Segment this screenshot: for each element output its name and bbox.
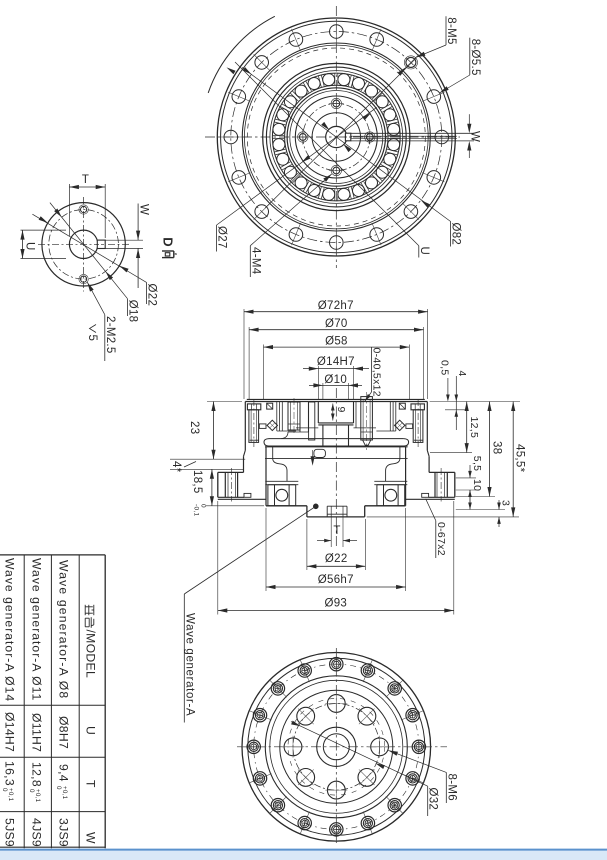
svg-text:Ø56h7: Ø56h7	[318, 574, 354, 586]
svg-text:Ø14H7: Ø14H7	[317, 356, 355, 368]
svg-text:3: 3	[500, 500, 512, 506]
svg-text:Wave generator-A Ø11: Wave generator-A Ø11	[30, 558, 44, 701]
svg-text:4-M4: 4-M4	[249, 247, 261, 275]
svg-text:Ø72h7: Ø72h7	[318, 300, 354, 312]
svg-text:8-M6: 8-M6	[445, 774, 457, 801]
svg-text:Ø32: Ø32	[427, 788, 439, 811]
svg-text:Ø10: Ø10	[324, 374, 347, 386]
svg-text:3JS9: 3JS9	[57, 818, 71, 847]
svg-text:0-40,5x12: 0-40,5x12	[371, 348, 383, 397]
svg-text:18,5: 18,5	[191, 470, 203, 494]
svg-text:Wave generator-A Ø14: Wave generator-A Ø14	[3, 558, 17, 702]
svg-text:/MODEL: /MODEL	[84, 630, 98, 679]
svg-text:9: 9	[335, 407, 347, 413]
svg-text:Ø22: Ø22	[146, 284, 158, 307]
svg-text:Ø27: Ø27	[216, 226, 228, 249]
svg-text:Ø18: Ø18	[127, 300, 139, 323]
svg-text:8-Ø5.5: 8-Ø5.5	[469, 39, 481, 76]
svg-text:2-M2.5: 2-M2.5	[104, 316, 116, 354]
svg-text:T: T	[84, 780, 98, 788]
svg-text:10: 10	[471, 479, 483, 491]
svg-text:4*: 4*	[170, 461, 182, 473]
svg-text:0: 0	[28, 789, 35, 793]
svg-text:T: T	[333, 525, 340, 537]
svg-text:Ø93: Ø93	[324, 598, 347, 610]
svg-text:U: U	[84, 726, 98, 735]
svg-text:Wave generator-A: Wave generator-A	[183, 613, 195, 716]
svg-text:Ø11H7: Ø11H7	[30, 713, 44, 752]
svg-text:0: 0	[55, 786, 62, 790]
svg-text:Wave generator-A Ø8: Wave generator-A Ø8	[57, 560, 71, 699]
svg-text:Ø14H7: Ø14H7	[3, 712, 17, 752]
svg-text:38: 38	[491, 441, 503, 454]
svg-text:4: 4	[456, 371, 468, 377]
svg-text:Ø22: Ø22	[325, 553, 348, 565]
svg-text:Ø8H7: Ø8H7	[57, 716, 71, 749]
svg-text:W: W	[468, 131, 480, 142]
svg-text:45,5*: 45,5*	[514, 444, 526, 473]
svg-text:0: 0	[200, 504, 207, 508]
svg-text:D: D	[161, 237, 176, 247]
svg-text:0-67x2: 0-67x2	[435, 522, 447, 556]
svg-text:16,3: 16,3	[3, 761, 17, 786]
svg-text:W: W	[84, 832, 98, 844]
svg-text:0,5: 0,5	[439, 360, 451, 376]
svg-text:Ø82: Ø82	[450, 223, 462, 246]
svg-text:5JS9: 5JS9	[3, 818, 17, 847]
svg-text:5: 5	[86, 335, 98, 342]
svg-text:9,4: 9,4	[57, 764, 71, 782]
svg-text:5,5: 5,5	[471, 456, 483, 472]
svg-text:12,5: 12,5	[468, 417, 480, 439]
svg-text:0: 0	[1, 788, 8, 792]
svg-text:8-M5: 8-M5	[445, 17, 457, 44]
svg-text:U: U	[24, 242, 36, 251]
svg-text:4JS9: 4JS9	[30, 818, 44, 847]
svg-text:W: W	[138, 204, 150, 215]
svg-text:T: T	[82, 174, 89, 186]
svg-text:-0,1: -0,1	[193, 504, 200, 516]
svg-text:U: U	[418, 247, 430, 256]
svg-text:Ø58: Ø58	[325, 336, 348, 348]
svg-text:23: 23	[188, 421, 200, 434]
svg-text:Ø70: Ø70	[325, 318, 348, 330]
svg-text:12,8: 12,8	[30, 762, 44, 787]
